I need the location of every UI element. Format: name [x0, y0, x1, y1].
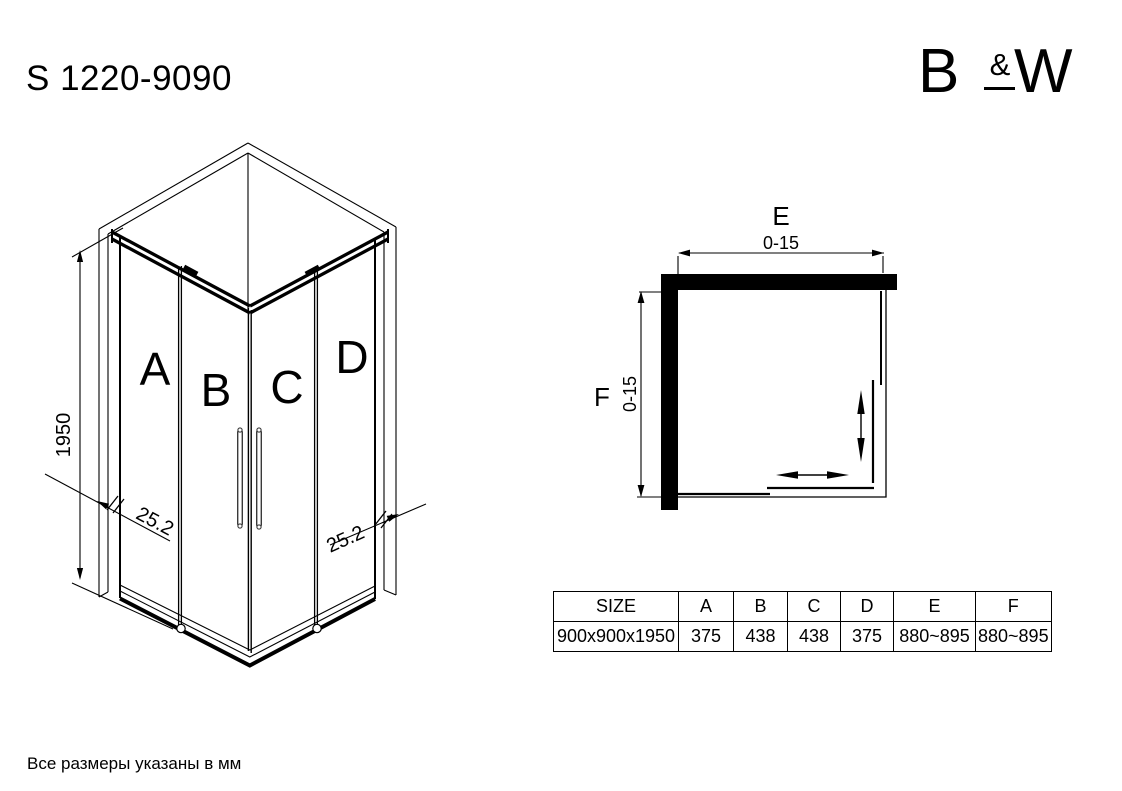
door-handles [238, 428, 262, 529]
dimension-profile-right-value: 25.2 [323, 522, 368, 558]
table-header-d: D [841, 592, 894, 622]
table-header-f: F [976, 592, 1052, 622]
roller-right [313, 624, 321, 632]
table-cell-d: 375 [841, 622, 894, 652]
table-cell-f: 880~895 [976, 622, 1052, 652]
table-header-c: C [788, 592, 841, 622]
door-slide-arrow-vertical [857, 390, 864, 462]
table-header-size: SIZE [554, 592, 679, 622]
roller-left [177, 624, 185, 632]
logo-letter-b: B [918, 37, 959, 106]
table-cell-c: 438 [788, 622, 841, 652]
dimension-e-value: 0-15 [763, 233, 799, 253]
dimension-profile-left: 25.2 [45, 474, 177, 541]
technical-drawing: B & W [0, 0, 1122, 791]
brand-logo: B & W [918, 37, 1073, 106]
dimension-f: F 0-15 [594, 291, 661, 497]
plan-wall-top [661, 274, 897, 290]
table-cell-e: 880~895 [894, 622, 976, 652]
dimension-e: E 0-15 [678, 201, 884, 274]
table-header-e: E [894, 592, 976, 622]
panel-label-a: A [140, 343, 171, 395]
logo-ampersand: & [990, 47, 1011, 82]
door-slide-arrow-horizontal [776, 471, 849, 478]
dimension-height: 1950 [53, 228, 173, 629]
panel-label-b: B [201, 364, 232, 416]
top-rail [112, 229, 388, 313]
table-cell-a: 375 [679, 622, 734, 652]
bottom-rail [120, 585, 375, 666]
dimension-f-value: 0-15 [620, 376, 640, 412]
dimension-f-label: F [594, 382, 610, 412]
plan-view: E 0-15 F 0-15 [594, 201, 897, 510]
plan-enclosure-outline [678, 290, 886, 497]
dimension-height-value: 1950 [53, 413, 75, 458]
panel-label-d: D [335, 331, 368, 383]
table-data-row: 900x900x1950 375 438 438 375 880~895 880… [554, 622, 1052, 652]
logo-underline [984, 87, 1015, 90]
dimension-profile-left-value: 25.2 [132, 503, 177, 541]
handle-door-c [257, 430, 262, 527]
table-header-b: B [734, 592, 788, 622]
footnote: Все размеры указаны в мм [27, 754, 241, 774]
plan-wall-left [661, 274, 678, 510]
table-header-a: A [679, 592, 734, 622]
table-header-row: SIZE A B C D E F [554, 592, 1052, 622]
dimension-e-label: E [772, 201, 789, 231]
handle-door-b [238, 430, 243, 526]
logo-letter-w: W [1014, 37, 1073, 106]
panel-label-c: C [270, 361, 303, 413]
table-cell-size: 900x900x1950 [554, 622, 679, 652]
isometric-view: A B C D 1950 25.2 [45, 143, 426, 666]
size-table: SIZE A B C D E F 900x900x1950 375 438 43… [553, 591, 1052, 652]
table-cell-b: 438 [734, 622, 788, 652]
